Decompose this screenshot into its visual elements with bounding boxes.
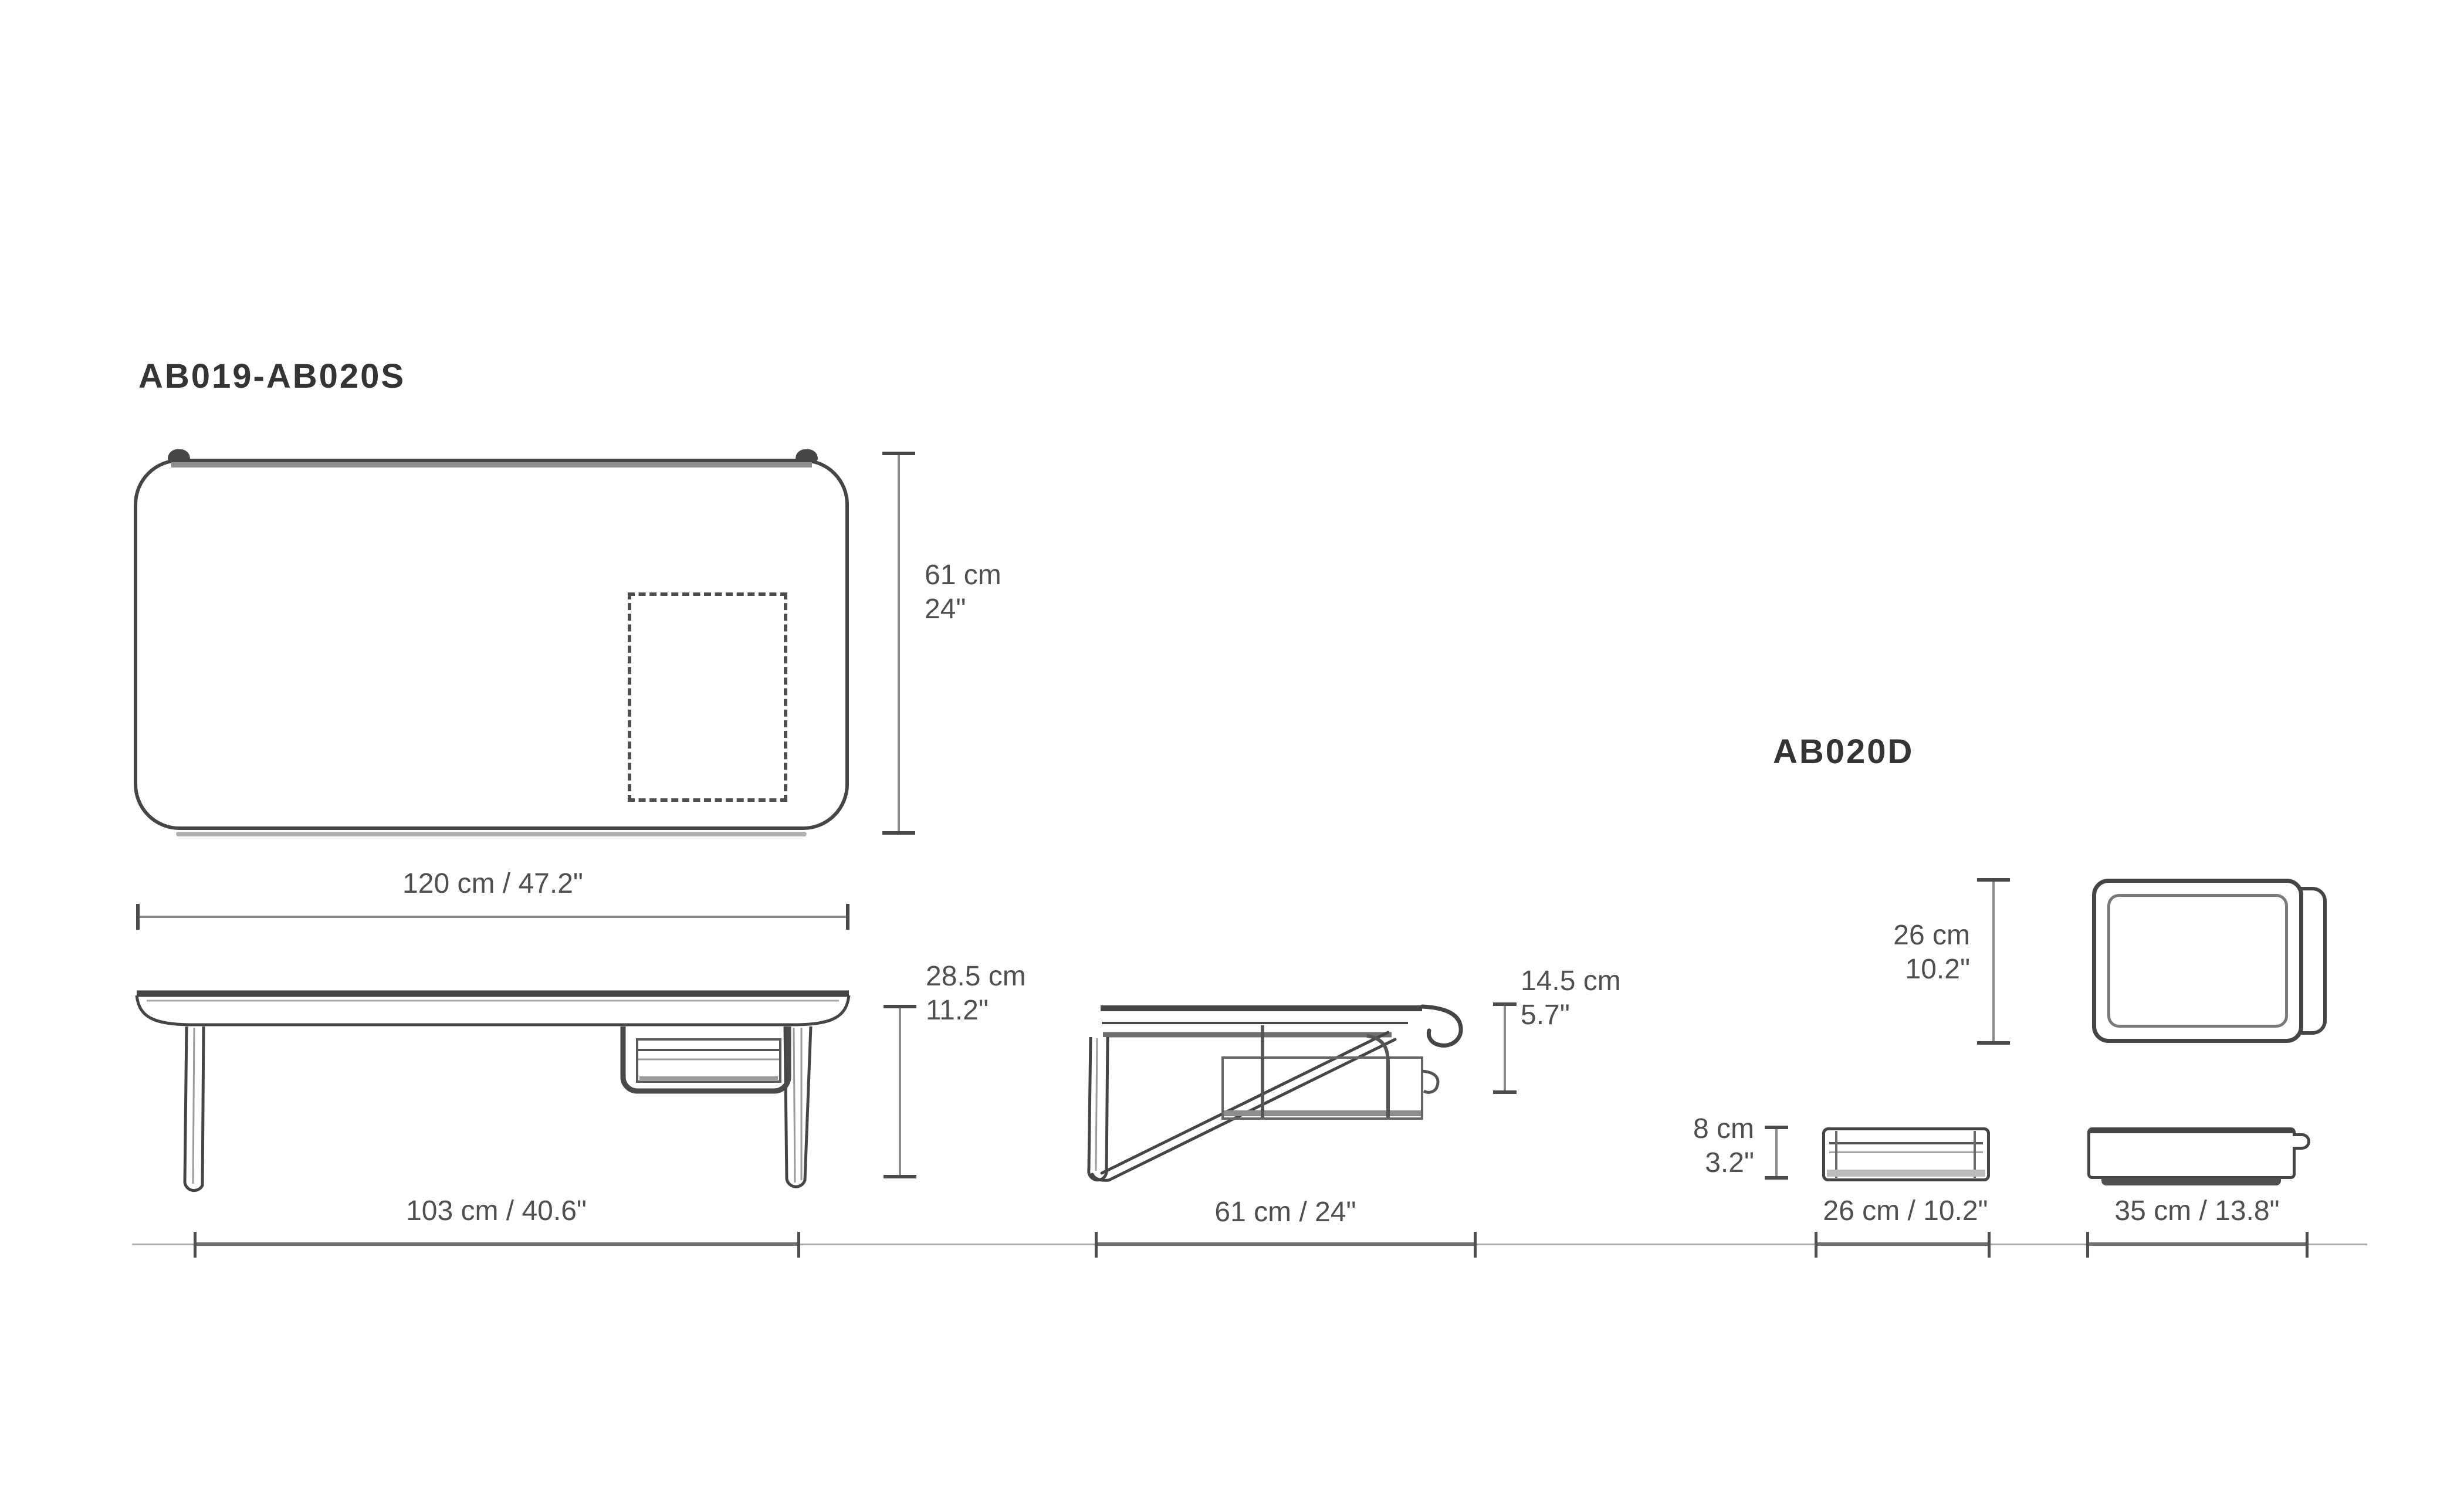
table-end-view	[1079, 962, 1490, 1220]
ground-tick	[1988, 1232, 1991, 1258]
dim-hang-in: 5.7"	[1521, 1000, 1570, 1031]
dimension-drawing-canvas: AB019-AB020S 61 cm 24" 120 cm / 47.2" 28…	[0, 0, 2464, 1511]
side-left-leg-shadow	[193, 1028, 194, 1184]
dim-label-tray-height: 8 cm 3.2"	[1660, 1112, 1754, 1180]
dim-label-end-span: 61 cm / 24"	[1214, 1195, 1356, 1229]
tray-front-rim-line	[1829, 1142, 1983, 1144]
dim-top-depth-in: 24"	[925, 594, 966, 625]
dim-line-hang-depth	[1504, 1004, 1506, 1092]
dim-side-height-cm: 28.5 cm	[926, 961, 1026, 992]
ground-tick	[2086, 1232, 2089, 1258]
table-figure-title: AB019-AB020S	[138, 357, 405, 396]
side-right-leg-seam-1	[794, 1028, 795, 1183]
end-leg-shadow	[1096, 1038, 1097, 1171]
dim-line-side-height	[899, 1007, 901, 1177]
end-tabletop-hook	[1422, 1007, 1461, 1045]
dim-side-height-in: 11.2"	[926, 995, 989, 1026]
dim-tray-height-in: 3.2"	[1705, 1147, 1754, 1178]
ground-tick	[797, 1232, 800, 1258]
dim-label-tray-width: 26 cm / 10.2"	[1823, 1194, 1988, 1228]
dim-label-side-height: 28.5 cm 11.2"	[926, 960, 1026, 1028]
dim-top-depth-cm: 61 cm	[925, 560, 1001, 591]
table-top-view-edge-band	[171, 462, 812, 467]
table-top-view-tab-right	[796, 449, 818, 461]
end-leg	[1089, 1037, 1108, 1180]
tray-top-view-inner-rim	[2107, 894, 2288, 1028]
dim-label-top-depth: 61 cm 24"	[925, 558, 1001, 626]
ground-span-end	[1096, 1242, 1475, 1246]
end-diagonal-brace-upper	[1102, 1032, 1388, 1173]
tray-front-base-shadow	[1827, 1170, 1985, 1177]
ground-tick	[1815, 1232, 1817, 1258]
table-top-view-tab-left	[168, 449, 190, 461]
ground-tick	[194, 1232, 197, 1258]
ground-span-tray-side	[2087, 1242, 2307, 1246]
table-side-view	[117, 974, 880, 1208]
ground-span-side	[195, 1242, 798, 1246]
dim-label-tray-length: 35 cm / 13.8"	[2114, 1194, 2279, 1228]
dim-line-top-width	[137, 916, 848, 918]
tray-side-base	[2101, 1178, 2281, 1185]
dim-label-hang-depth: 14.5 cm 5.7"	[1521, 964, 1621, 1032]
ground-span-tray-front	[1816, 1242, 1989, 1246]
side-basket-tray	[637, 1039, 780, 1082]
dim-label-square: 26 cm 10.2"	[1883, 919, 1970, 987]
tray-side-hook	[2293, 1133, 2310, 1150]
dim-line-tray-height	[1775, 1127, 1778, 1178]
table-top-view-bottom-shadow	[176, 832, 807, 836]
dim-tray-height-cm: 8 cm	[1693, 1113, 1754, 1144]
dim-square-in: 10.2"	[1905, 954, 1970, 985]
end-diagonal-brace-lower	[1109, 1039, 1395, 1180]
ground-tick	[1474, 1232, 1477, 1258]
dim-label-top-width: 120 cm / 47.2"	[402, 867, 583, 901]
ground-tick	[1095, 1232, 1098, 1258]
tray-figure-title: AB020D	[1773, 732, 1914, 771]
ground-tick	[2306, 1232, 2309, 1258]
dim-square-cm: 26 cm	[1893, 920, 1970, 951]
dim-hang-cm: 14.5 cm	[1521, 965, 1621, 997]
dim-line-square	[1992, 880, 1995, 1043]
tray-side-view-outline	[2087, 1127, 2296, 1179]
tray-front-inner-line	[1829, 1151, 1983, 1153]
dim-label-side-span: 103 cm / 40.6"	[406, 1194, 587, 1228]
tray-position-dashed-outline	[628, 592, 787, 802]
dim-line-top-depth	[898, 453, 900, 833]
end-basket-hook	[1422, 1071, 1438, 1092]
